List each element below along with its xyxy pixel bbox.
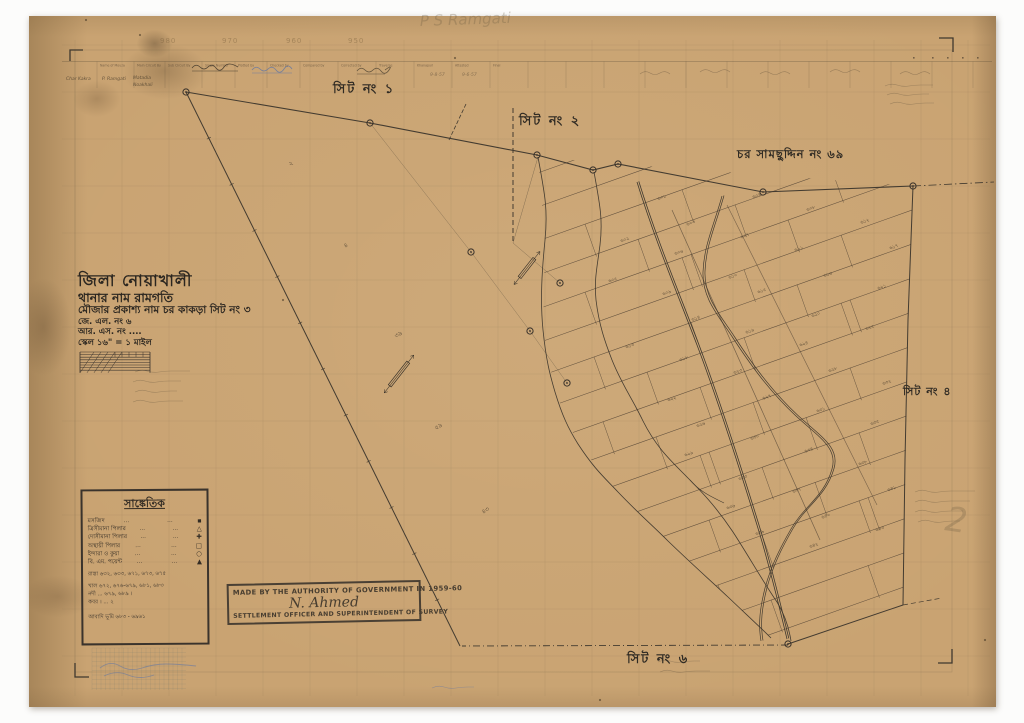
legend-note: কবর । ... ২ [88,598,202,607]
legend-row-label: ত্রিসীমানা পিলার [88,525,126,533]
map-scale: স্কেল ১৬" = ১ মাইল [78,339,251,348]
legend-notes: রাস্তা ৬৩২, ৬৩৩, ৬৭১, ৬৭৩, ৬৭৫খাল ৬৭২, ৬… [88,570,202,622]
legend-symbol-icon: △ [192,525,202,533]
legend-leader: ... [148,517,192,526]
sheet-4-label: সিট নং ৪ [903,383,952,402]
jl-number: জে. এল. নং ৬ [78,318,251,327]
legend-leader: ... [159,533,191,541]
legend-symbol-icon: ✚ [192,533,202,541]
legend-leader: ... [157,558,192,566]
char-samsuddin-label: চর সামছুদ্দিন নং ৬৯ [737,146,844,165]
thana-name: থানার নাম রামগতি [78,291,251,305]
legend-note: রাস্তা ৬৩২, ৬৩৩, ৬৭১, ৬৭৩, ৬৭৫ [88,570,202,579]
legend-symbol-icon: □ [192,541,202,549]
legend-leader: ... [105,517,149,526]
legend-rows: মসজিদ ... ... ▪ত্রিসীমানা পিলার ... ... … [88,517,202,567]
legend-box: সাঙ্কেতিক মসজিদ ... ... ▪ত্রিসীমানা পিলা… [80,489,209,646]
legend-row-label: বি. এম. পয়েন্ট [88,558,122,566]
legend-row-label: ইন্দারা ও কুয়া [88,550,119,558]
scanned-map-page: { "colors":{"paper":"#c9a372","ink":"#2f… [0,0,1024,723]
legend-leader: ... [159,525,192,533]
authority-stamp: MADE BY THE AUTHORITY OF GOVERNMENT IN 1… [227,580,422,625]
sheet-2-label: সিট নং ২ [519,112,581,133]
legend-row-label: দোসীমানা পিলার [88,534,127,542]
district-name: জিলা নোয়াখালী [78,272,251,290]
legend-leader: ... [120,542,156,550]
title-block: জিলা নোয়াখালী থানার নাম রামগতি মৌজার প্… [78,272,251,348]
sheet-6-label: সিট নং ৬ [627,650,689,671]
legend-symbol-icon: ○ [192,549,202,557]
sheet-1-label: সিট নং ১ [333,80,395,101]
rs-number: আর. এস. নং .... [78,328,251,337]
legend-leader: ... [126,525,159,533]
legend-note: আবাদি ভূমি ৬৮৩ - ৬৯৬১ [88,613,202,622]
legend-row: বি. এম. পয়েন্ট ... ... ▲ [88,558,202,567]
mouza-name: মৌজার প্রকাশ্য নাম চর কাকড়া সিট নং ৩ [78,305,251,317]
legend-title: সাঙ্কেতিক [87,495,201,515]
legend-leader: ... [156,541,192,549]
legend-symbol-icon: ▪ [192,517,202,525]
legend-row-label: অস্থায়ী পিলার [88,542,120,550]
legend-leader: ... [156,549,192,557]
legend-symbol-icon: ▲ [192,558,202,566]
legend-leader: ... [122,558,157,566]
legend-row-label: মসজিদ [88,517,105,525]
legend-leader: ... [119,550,155,558]
legend-leader: ... [127,533,159,541]
